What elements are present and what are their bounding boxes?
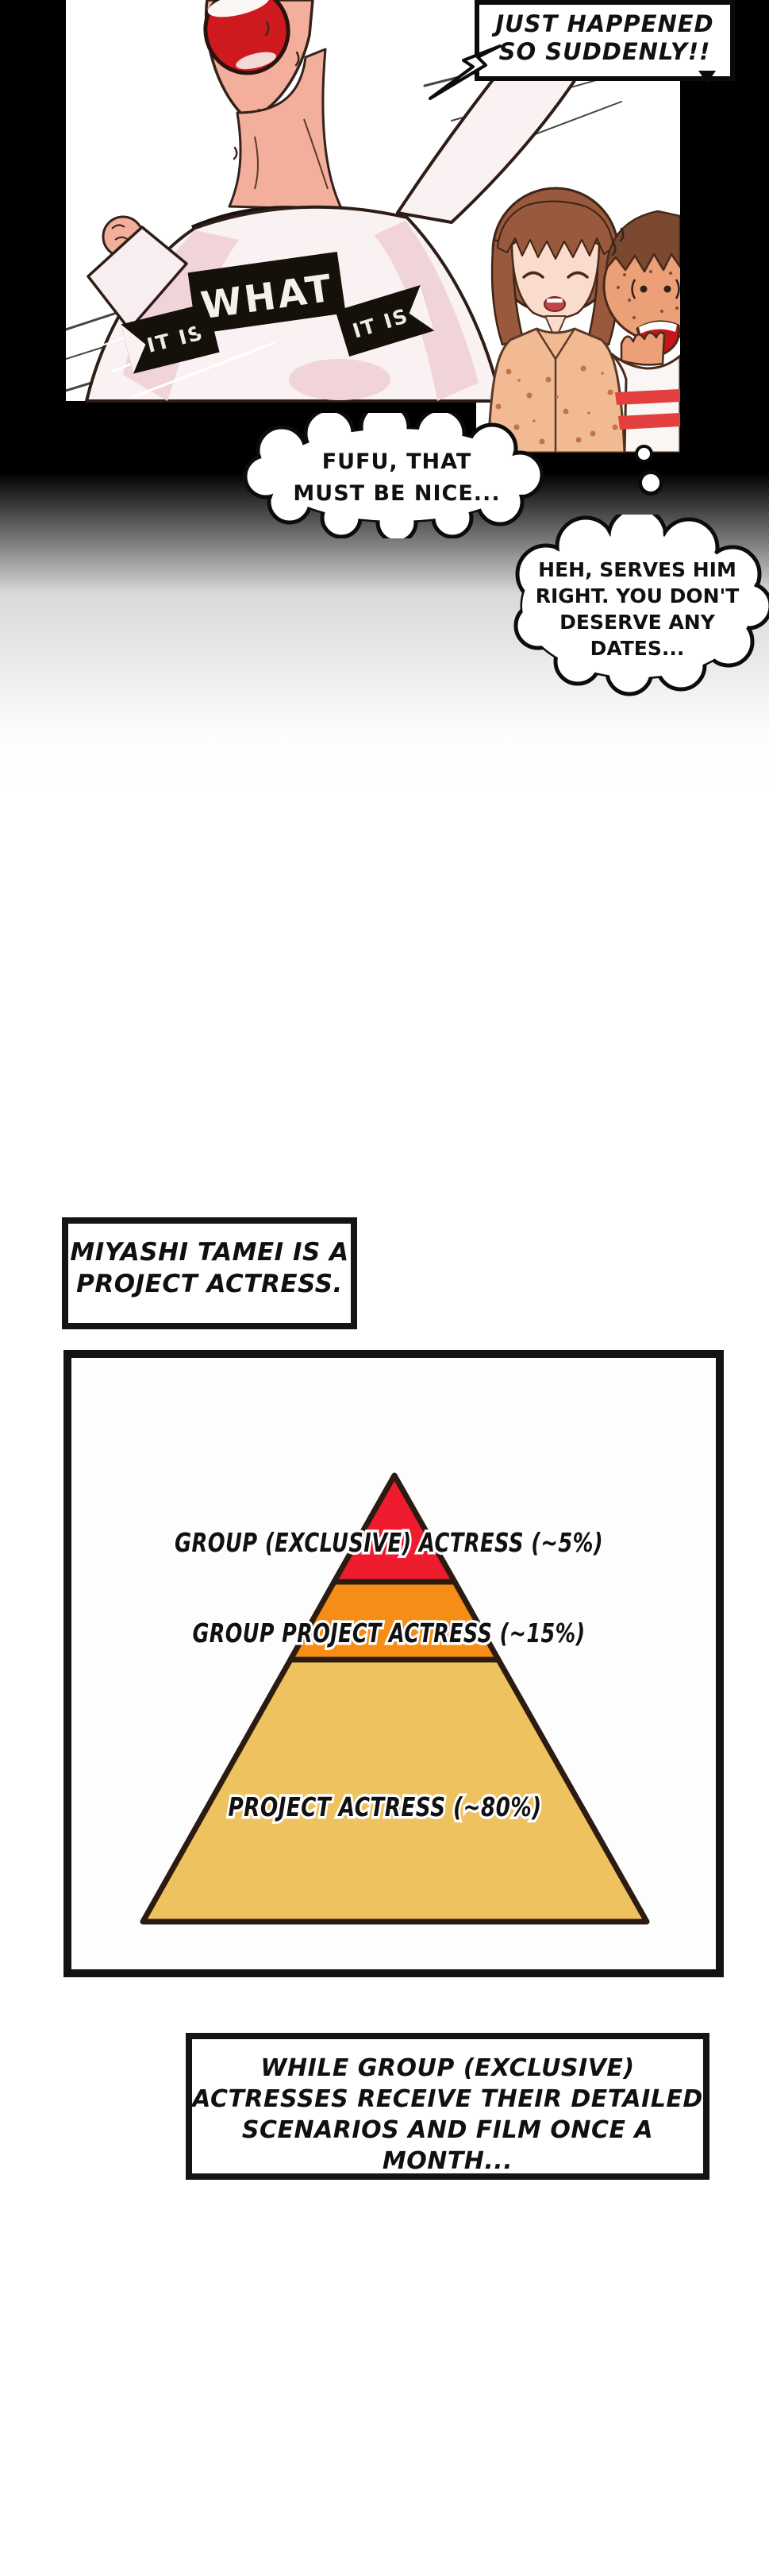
comic-page: IT IS IT IS WHAT: [0, 0, 769, 2576]
pyramid-level-bottom: [143, 1660, 647, 1922]
pyramid-label-project: PROJECT ACTRESS (~80%): [229, 1791, 542, 1822]
fufu-line2: MUST BE NICE...: [293, 481, 500, 506]
hand-over-mouth: [621, 333, 664, 365]
pyramid-label-exclusive: GROUP (EXCLUSIVE) ACTRESS (~5%): [175, 1527, 603, 1558]
thought-line3: DESERVE ANY: [559, 611, 716, 634]
speech-box-notch: [698, 71, 716, 83]
thought-trail-dot-large: [638, 470, 663, 496]
speech-box: JUST HAPPENED SO SUDDENLY!!: [475, 0, 735, 81]
thought-line4: DATES...: [590, 637, 685, 660]
speech-box-line1: JUST HAPPENED: [479, 10, 730, 38]
caption2-line1: WHILE GROUP (EXCLUSIVE): [192, 2053, 703, 2084]
thought-line2: RIGHT. YOU DON'T: [536, 584, 740, 607]
thought-trail-dot-small: [635, 445, 653, 463]
pyramid-diagram-panel: GROUP (EXCLUSIVE) ACTRESS (~5%) GROUP PR…: [63, 1350, 724, 1977]
fufu-line1: FUFU, THAT: [322, 449, 472, 474]
caption1-line2: PROJECT ACTRESS.: [68, 1268, 351, 1300]
speech-box-line2: SO SUDDENLY!!: [479, 38, 730, 66]
thought-bubble: HEH, SERVES HIM RIGHT. YOU DON'T DESERVE…: [502, 515, 769, 699]
actress-hierarchy-pyramid: GROUP (EXCLUSIVE) ACTRESS (~5%) GROUP PR…: [71, 1358, 716, 1969]
caption1-line1: MIYASHI TAMEI IS A: [68, 1236, 351, 1268]
speech-box-tail: [429, 44, 502, 102]
caption2-line2: ACTRESSES RECEIVE THEIR DETAILED: [192, 2084, 703, 2115]
pyramid-label-group-project: GROUP PROJECT ACTRESS (~15%): [193, 1618, 586, 1649]
thought-line1: HEH, SERVES HIM: [538, 558, 736, 581]
narration-caption-while-group: WHILE GROUP (EXCLUSIVE) ACTRESSES RECEIV…: [186, 2033, 709, 2180]
caption2-line3: SCENARIOS AND FILM ONCE A MONTH...: [192, 2115, 703, 2177]
narration-caption-miyashi: MIYASHI TAMEI IS A PROJECT ACTRESS.: [62, 1217, 357, 1329]
